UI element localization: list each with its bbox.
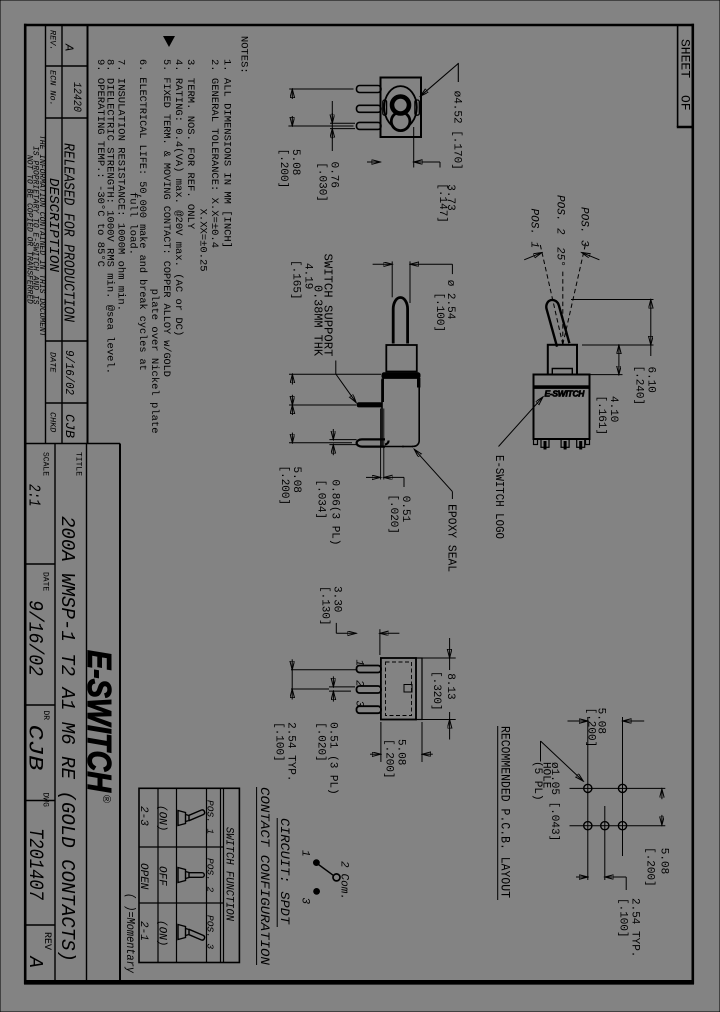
svg-text:[.200]: [.200] — [383, 739, 395, 779]
svg-text:200A WMSP-1 T2 A1 M6 RE (GOLD: 200A WMSP-1 T2 A1 M6 RE (GOLD CONTACTS) — [56, 516, 78, 962]
svg-text:[.200]: [.200] — [277, 149, 289, 189]
svg-text:2: 2 — [338, 861, 350, 868]
svg-text:[.020]: [.020] — [314, 722, 326, 762]
svg-text:1: 1 — [299, 850, 311, 857]
svg-text:[.034]: [.034] — [315, 480, 327, 520]
svg-text:[.100]: [.100] — [433, 293, 445, 333]
svg-text:9/16/02: 9/16/02 — [23, 600, 46, 676]
svg-text:2. GENERAL TOLERANCE: X.X=±0.4: 2. GENERAL TOLERANCE: X.X=±0.4 — [208, 59, 220, 248]
svg-text:5.08: 5.08 — [289, 149, 301, 175]
svg-text:2-3: 2-3 — [137, 806, 149, 826]
svg-text:8.13: 8.13 — [444, 673, 456, 699]
svg-text:(5 PL): (5 PL) — [531, 761, 543, 801]
svg-text:0.51: 0.51 — [399, 496, 411, 523]
svg-text:NOTES:: NOTES: — [238, 36, 250, 74]
svg-text:CJB: CJB — [62, 414, 77, 438]
svg-text:2: 2 — [353, 680, 365, 687]
svg-text:[.200]: [.200] — [278, 466, 290, 506]
svg-text:X.XX=±0.25: X.XX=±0.25 — [197, 209, 209, 272]
svg-text:12420: 12420 — [70, 82, 82, 112]
svg-text:CHKD: CHKD — [48, 412, 58, 432]
svg-text:3. TERM. NOS. FOR REF. ONLY: 3. TERM. NOS. FOR REF. ONLY — [184, 59, 196, 230]
svg-text:E-SWITCH LOGO: E-SWITCH LOGO — [492, 455, 506, 539]
svg-text:TITLE: TITLE — [74, 452, 83, 476]
svg-text:POS. 2: POS. 2 — [205, 858, 216, 893]
svg-text:OFF: OFF — [156, 866, 168, 886]
svg-text:DWG: DWG — [41, 793, 50, 808]
svg-text:RECOMMENDED P.C.B. LAYOUT: RECOMMENDED P.C.B. LAYOUT — [498, 726, 512, 898]
svg-text:Com.: Com. — [338, 874, 350, 900]
svg-text:3.30: 3.30 — [331, 586, 343, 612]
svg-text:2.54 TYP.: 2.54 TYP. — [285, 722, 297, 781]
svg-text:EPOXY SEAL: EPOXY SEAL — [444, 504, 458, 572]
svg-text:0.76: 0.76 — [328, 162, 340, 188]
svg-text:[.020]: [.020] — [387, 494, 399, 534]
svg-text:T201407: T201407 — [23, 828, 46, 900]
svg-text:[.147]: [.147] — [436, 183, 448, 223]
svg-text:3: 3 — [299, 898, 311, 905]
svg-text:CIRCUIT: SPDT: CIRCUIT: SPDT — [277, 818, 292, 925]
svg-text:[.161]: [.161] — [595, 396, 607, 436]
svg-text:POS. 1: POS. 1 — [205, 800, 216, 834]
svg-text:2:1: 2:1 — [25, 484, 44, 507]
svg-text:3: 3 — [353, 701, 365, 708]
svg-text:[.030]: [.030] — [316, 162, 328, 202]
svg-text:2.54 TYP.: 2.54 TYP. — [629, 898, 641, 957]
svg-text:DATE: DATE — [48, 352, 58, 373]
svg-text:(ON): (ON) — [156, 920, 168, 946]
svg-text:9. OPERATING TEMP.: -30°C to 8: 9. OPERATING TEMP.: -30°C to 85°C — [94, 59, 106, 267]
svg-text:OF: OF — [678, 95, 693, 111]
svg-text:E-SWITCH: E-SWITCH — [545, 389, 586, 399]
svg-text:A: A — [24, 956, 46, 968]
svg-text:25°: 25° — [554, 247, 566, 267]
svg-text:SHEET: SHEET — [678, 39, 693, 78]
svg-text:9/16/02: 9/16/02 — [62, 350, 76, 395]
svg-text:SWITCH FUNCTION: SWITCH FUNCTION — [223, 827, 235, 921]
svg-text:( )=Momentary: ( )=Momentary — [123, 893, 137, 974]
svg-text:REV: REV — [41, 932, 52, 950]
svg-text:4.10: 4.10 — [607, 396, 619, 422]
svg-text:full load.: full load. — [126, 192, 138, 255]
svg-text:®: ® — [100, 795, 112, 803]
svg-text:REV.: REV. — [48, 30, 58, 50]
svg-text:POS. 1: POS. 1 — [528, 209, 540, 249]
svg-text:RELEASED FOR PRODUCTION: RELEASED FOR PRODUCTION — [60, 143, 77, 322]
svg-text:5.08: 5.08 — [290, 467, 302, 493]
svg-text:ø4.52 [.170]: ø4.52 [.170] — [451, 91, 463, 170]
svg-text:1. ALL DIMENSIONS IN MM [INCH]: 1. ALL DIMENSIONS IN MM [INCH] — [220, 59, 232, 248]
svg-text:4.19: 4.19 — [302, 263, 314, 289]
svg-text:POS. 3: POS. 3 — [205, 915, 216, 950]
svg-text:POS. 2: POS. 2 — [554, 195, 566, 235]
svg-text:[.165]: [.165] — [290, 260, 302, 300]
svg-text:OPEN: OPEN — [137, 863, 149, 890]
svg-text:plate over Nickel plate: plate over Nickel plate — [148, 289, 160, 434]
svg-text:E-SWITCH: E-SWITCH — [81, 650, 118, 793]
svg-text:[.200]: [.200] — [585, 708, 597, 748]
svg-text:0.86(3 PL): 0.86(3 PL) — [329, 480, 341, 546]
svg-text:ECN No.: ECN No. — [48, 70, 58, 106]
svg-text:CONTACT CONFIGURATION: CONTACT CONFIGURATION — [257, 787, 272, 965]
svg-text:CJB: CJB — [23, 725, 46, 771]
svg-text:[.320]: [.320] — [430, 671, 442, 711]
svg-text:5. FIXED TERM. & MOVING CONTAC: 5. FIXED TERM. & MOVING CONTACT: COPPER … — [160, 59, 172, 377]
svg-text:5.08: 5.08 — [658, 848, 670, 874]
svg-text:DATE: DATE — [41, 572, 50, 591]
svg-text:A: A — [62, 43, 76, 51]
svg-text:4. RATING: 0.4(VA) max. @20V m: 4. RATING: 0.4(VA) max. @20V max. (AC or… — [172, 59, 184, 336]
svg-text:1: 1 — [353, 660, 365, 667]
svg-text:6.10: 6.10 — [644, 367, 656, 393]
svg-text:[.200]: [.200] — [644, 847, 656, 887]
svg-text:DR: DR — [41, 711, 50, 721]
svg-text:0.51 (3 PL): 0.51 (3 PL) — [326, 722, 338, 795]
svg-text:[.130]: [.130] — [319, 586, 331, 626]
svg-text:POS. 3: POS. 3 — [578, 207, 590, 247]
svg-text:(ON): (ON) — [156, 805, 168, 831]
svg-text:0.38MM THK: 0.38MM THK — [311, 285, 325, 357]
svg-text:SCALE: SCALE — [41, 452, 50, 476]
svg-text:[.100]: [.100] — [617, 898, 629, 938]
svg-text:[.240]: [.240] — [632, 366, 644, 406]
svg-text:5.08: 5.08 — [395, 739, 407, 765]
svg-text:2-1: 2-1 — [137, 921, 149, 941]
svg-text:NOT TO BE COPIED OR TRANSFERRE: NOT TO BE COPIED OR TRANSFERRED — [24, 155, 33, 304]
svg-text:[.100]: [.100] — [273, 722, 285, 762]
svg-text:DESCRIPTION: DESCRIPTION — [45, 178, 61, 273]
